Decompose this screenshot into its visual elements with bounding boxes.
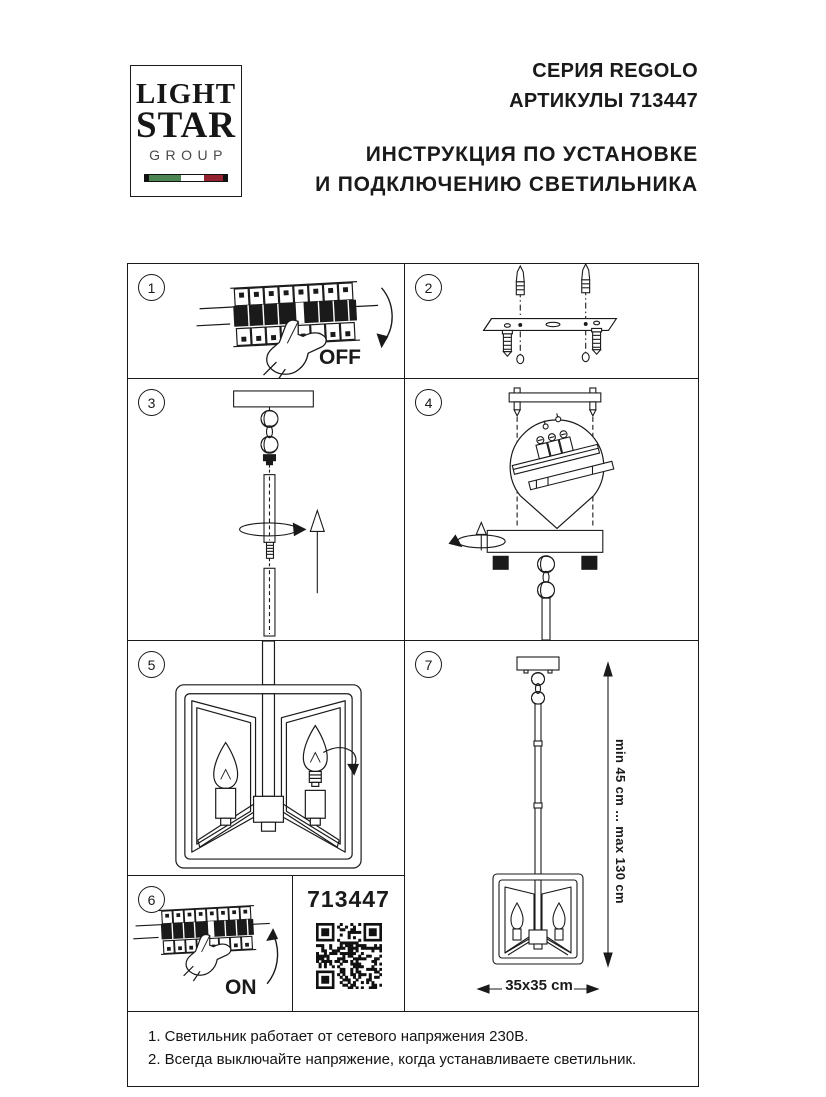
bulb-install-illustration bbox=[128, 641, 404, 875]
step-7-panel: 7 bbox=[405, 641, 698, 1011]
step-3-panel: 3 bbox=[128, 379, 405, 641]
base-size-label: 35x35 cm bbox=[501, 977, 577, 994]
step-4-panel: 4 bbox=[405, 379, 698, 641]
step-number-5: 5 bbox=[138, 651, 165, 678]
series-title: СЕРИЯ REGOLO bbox=[315, 56, 698, 86]
step-6-panel: 6 bbox=[128, 876, 293, 1011]
logo-word-star: STAR bbox=[131, 109, 241, 143]
steps-grid: 1 bbox=[127, 263, 699, 1087]
rotate-arrow-icon bbox=[449, 522, 505, 550]
height-range-label: min 45 cm ... max 130 cm bbox=[613, 736, 628, 906]
article-qr-panel: 713447 bbox=[293, 876, 405, 1011]
italian-flag-bar bbox=[144, 174, 228, 182]
notes-panel: 1. Светильник работает от сетевого напря… bbox=[128, 1011, 698, 1086]
logo-word-group: GROUP bbox=[131, 147, 241, 163]
step-1-panel: 1 bbox=[128, 264, 405, 379]
mounting-strap-illustration bbox=[405, 264, 698, 378]
off-label: OFF bbox=[319, 346, 361, 370]
step-number-6: 6 bbox=[138, 886, 165, 913]
instruction-title-line1: ИНСТРУКЦИЯ ПО УСТАНОВКЕ bbox=[315, 140, 698, 170]
step-number-1: 1 bbox=[138, 274, 165, 301]
note-line-2: 2. Всегда выключайте напряжение, когда у… bbox=[148, 1048, 636, 1071]
pendant-dimensions-illustration bbox=[405, 641, 698, 1011]
on-label: ON bbox=[225, 976, 257, 1000]
off-arrow-icon bbox=[377, 288, 393, 348]
step-number-7: 7 bbox=[415, 651, 442, 678]
article-number: 713447 bbox=[293, 886, 404, 913]
instruction-sheet: LIGHT STAR GROUP СЕРИЯ REGOLO АРТИКУЛЫ 7… bbox=[0, 0, 826, 1097]
wiring-canopy-illustration bbox=[405, 379, 698, 640]
instruction-title-line2: И ПОДКЛЮЧЕНИЮ СВЕТИЛЬНИКА bbox=[315, 170, 698, 200]
header-text: СЕРИЯ REGOLO АРТИКУЛЫ 713447 ИНСТРУКЦИЯ … bbox=[315, 56, 698, 200]
rod-assembly-illustration bbox=[128, 379, 404, 640]
up-arrow-icon bbox=[310, 510, 324, 593]
on-arrow-icon bbox=[266, 928, 278, 984]
article-title: АРТИКУЛЫ 713447 bbox=[315, 86, 698, 116]
step-number-4: 4 bbox=[415, 389, 442, 416]
lightstar-logo: LIGHT STAR GROUP bbox=[130, 65, 242, 197]
height-dimension-arrow bbox=[604, 663, 612, 966]
step-5-panel: 5 bbox=[128, 641, 405, 876]
step-2-panel: 2 bbox=[405, 264, 698, 379]
qr-code-icon bbox=[316, 923, 382, 989]
breaker-off-illustration bbox=[128, 264, 404, 378]
step-number-3: 3 bbox=[138, 389, 165, 416]
note-line-1: 1. Светильник работает от сетевого напря… bbox=[148, 1025, 636, 1048]
step-number-2: 2 bbox=[415, 274, 442, 301]
